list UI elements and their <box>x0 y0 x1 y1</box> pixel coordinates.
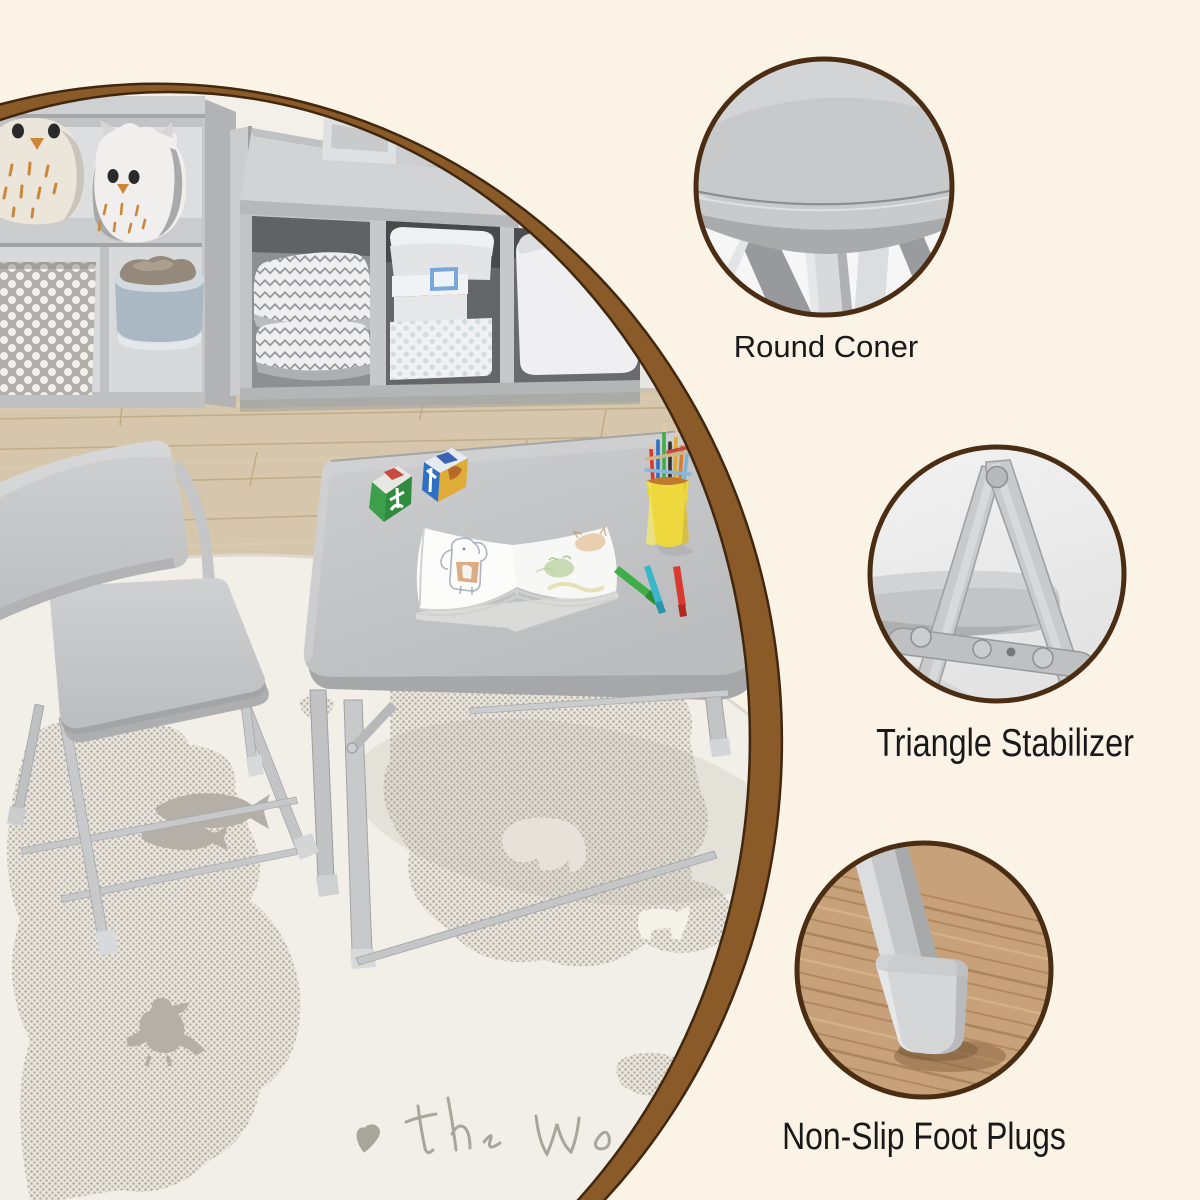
svg-text:Non-Slip Foot Plugs: Non-Slip Foot Plugs <box>782 1115 1066 1157</box>
svg-text:Round Coner: Round Coner <box>734 329 918 364</box>
svg-text:Triangle Stabilizer: Triangle Stabilizer <box>876 721 1134 765</box>
